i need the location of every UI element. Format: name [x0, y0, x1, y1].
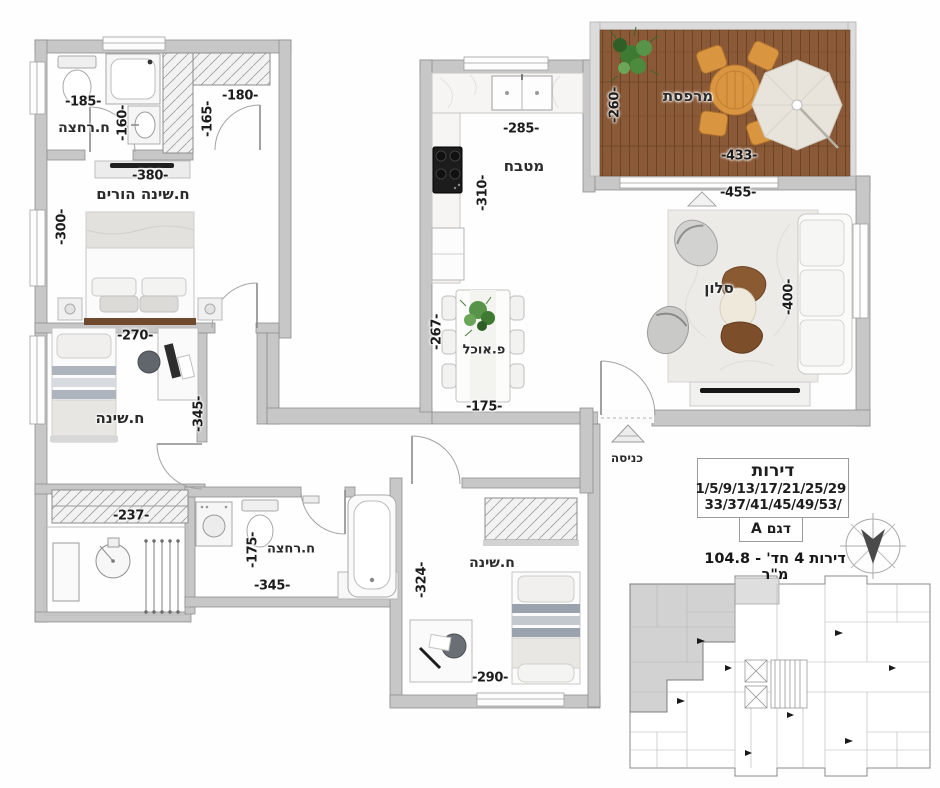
- dimension-label-15: -267-: [430, 314, 445, 350]
- floor-plan-page: ח.רחצהח.שינה הוריםח.שינהמטבחפ.אוכלסלוןמר…: [0, 0, 940, 788]
- dimension-label-17: -260-: [608, 87, 623, 123]
- chair-icon: [510, 364, 524, 388]
- dimension-label-14: -310-: [476, 175, 491, 211]
- room-label-bedroom3: ח.שינה: [469, 555, 515, 571]
- key-plan: [630, 576, 930, 776]
- umbrella-icon: [752, 60, 842, 150]
- chair-icon: [442, 364, 456, 388]
- chair-icon: [510, 296, 524, 320]
- dimension-label-7: -345-: [192, 396, 207, 432]
- service-balcony: [44, 527, 188, 615]
- chair-icon: [510, 330, 524, 354]
- dimension-label-13: -285-: [503, 122, 539, 137]
- dimension-label-20: -400-: [782, 279, 797, 315]
- dimension-label-0: -185-: [65, 95, 101, 110]
- entrance-arrow-icon: [612, 425, 644, 442]
- dimension-label-8: -237-: [113, 509, 149, 524]
- apartments-numbers-line1: 1/5/9/13/17/21/25/29: [700, 481, 846, 497]
- room-label-bedroom2: ח.שינה: [96, 409, 145, 427]
- laundry-lines-icon: [146, 541, 178, 612]
- dimension-label-6: -270-: [117, 329, 153, 344]
- room-label-kitchen: מטבח: [504, 157, 545, 175]
- chair-icon: [138, 351, 160, 373]
- room-label-living: סלון: [704, 279, 734, 297]
- room-label-bath2: ח.רחצה: [267, 542, 315, 557]
- model-box: דגם A: [739, 517, 803, 542]
- dimension-label-10: -345-: [254, 579, 290, 594]
- dimension-label-4: -380-: [132, 169, 168, 184]
- dimension-label-19: -455-: [720, 186, 756, 201]
- dimension-label-1: -160-: [116, 105, 131, 141]
- apartments-info-box: דירות 1/5/9/13/17/21/25/29 /33/37/41/45/…: [697, 458, 849, 518]
- dimension-label-3: -165-: [201, 101, 216, 137]
- tv-icon: [700, 388, 800, 393]
- room-label-entrance: כניסה: [611, 451, 643, 465]
- desk-icon: [158, 328, 198, 400]
- room-label-balcony: מרפסת: [663, 87, 713, 105]
- living-room-furniture: [641, 210, 852, 406]
- room-label-master-bedroom: ח.שינה הורים: [96, 185, 189, 203]
- sofa-icon: [798, 214, 852, 374]
- dimension-label-11: -324-: [415, 562, 430, 598]
- tv-console-icon: [690, 382, 810, 406]
- dimension-label-16: -175-: [466, 400, 502, 415]
- area-text: דירות 4 חד' - 104.8 מ"ר: [690, 551, 860, 583]
- apartments-title: דירות: [700, 461, 846, 481]
- dimension-label-9: -175-: [246, 532, 261, 568]
- boiler-icon: [53, 543, 79, 601]
- floor-plan-svg: [0, 0, 940, 788]
- room-label-dining: פ.אוכל: [463, 343, 506, 358]
- room-label-bath1: ח.רחצה: [58, 120, 110, 136]
- bedroom3-furniture: [410, 572, 580, 684]
- dimension-label-18: -433-: [721, 149, 757, 164]
- apartments-numbers-line2: /33/37/41/45/49/53: [700, 497, 846, 513]
- dimension-label-12: -290-: [472, 671, 508, 686]
- dimension-label-2: -180-: [222, 89, 258, 104]
- kitchen-fixtures: [432, 73, 583, 283]
- window-marker-icon: [688, 192, 716, 206]
- dimension-label-5: -300-: [55, 209, 70, 245]
